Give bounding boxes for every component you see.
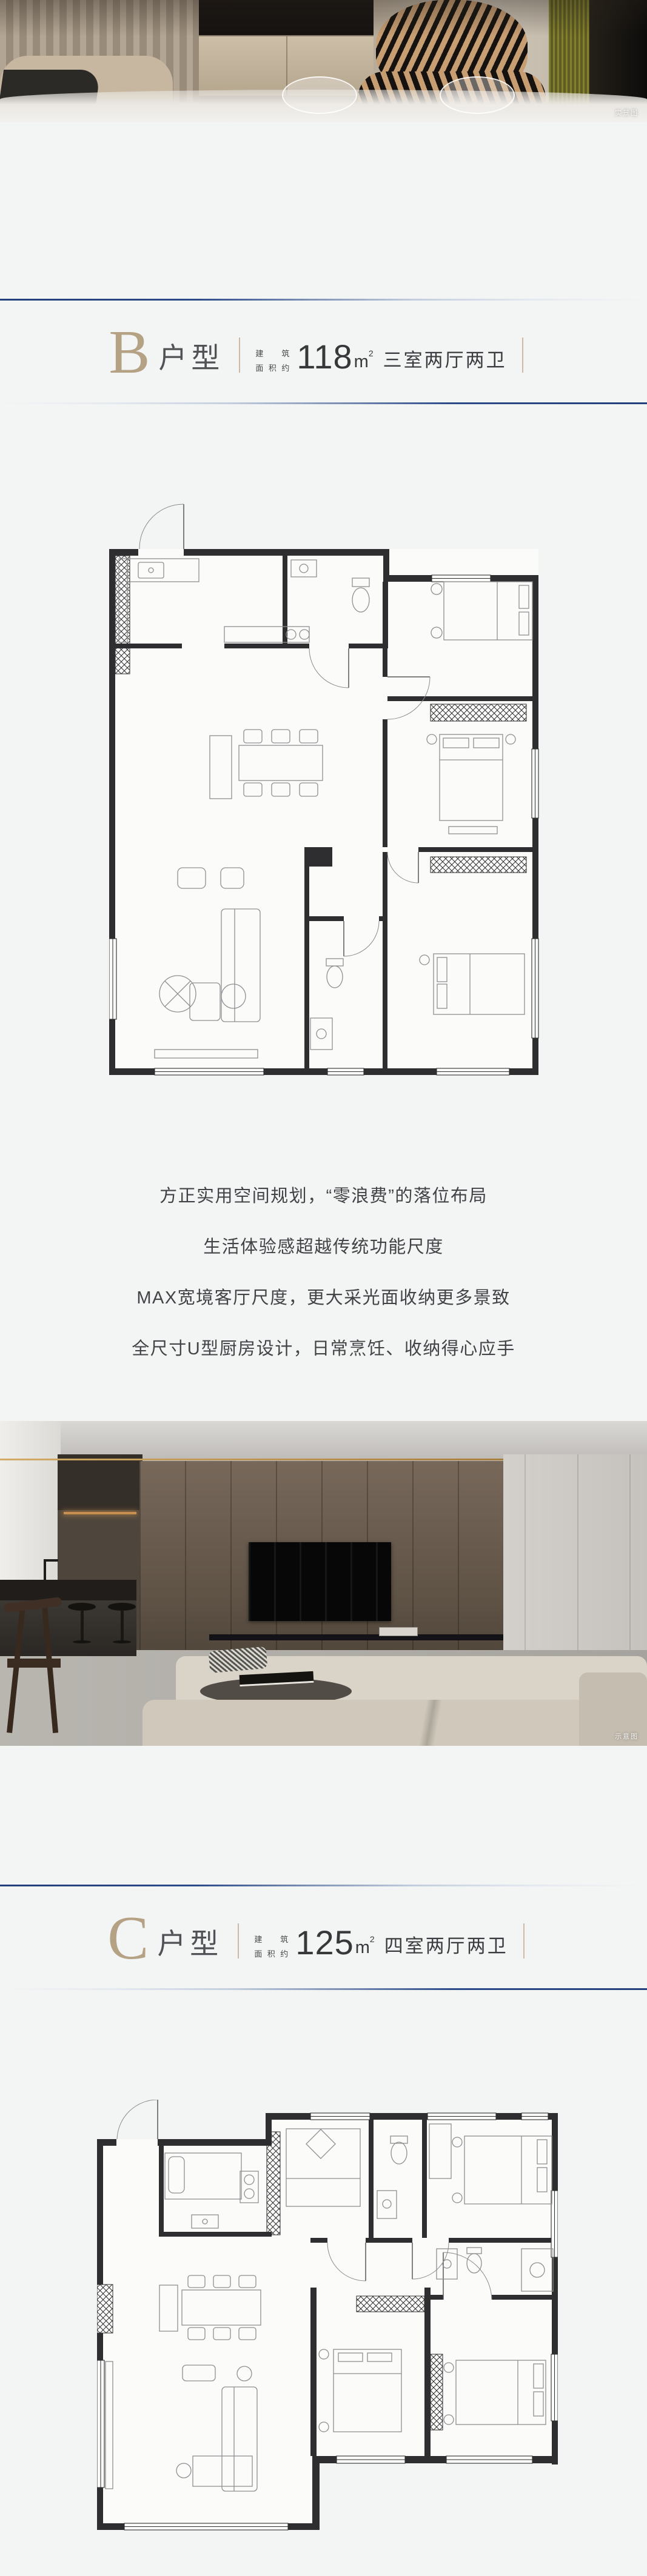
area-label-char: 约: [281, 362, 289, 373]
rule-top-c: [0, 1885, 647, 1886]
promo-page: 实景图 B 户型 建 筑 面 积 约 118 m2 三室两厅两卫: [0, 0, 647, 2576]
separator-line: [522, 338, 523, 373]
unit-c-header: C 户型 建 筑 面 积 约 125 m2 四室两厅两卫: [0, 1902, 647, 1975]
area-label-char: 面: [255, 362, 263, 373]
area-label-char: 筑: [281, 347, 289, 359]
unit-c-area-unit: m2: [355, 1934, 375, 1958]
unit-b-suffix: 户型: [158, 334, 224, 376]
render-photo-living-room: 示意图: [0, 1421, 647, 1746]
unit-b-layout: 三室两厅两卫: [383, 345, 507, 372]
unit-b-area-value: 118: [297, 337, 352, 376]
area-label-char: 面: [254, 1948, 262, 1959]
feature-line-3: MAX宽境客厅尺度，更大采光面收纳更多景致: [0, 1283, 647, 1309]
photo-caption: 示意图: [615, 1731, 639, 1741]
unit-c-area-value: 125: [295, 1923, 354, 1962]
area-label-char: 积: [269, 362, 277, 373]
feature-line-2: 生活体验感超越传统功能尺度: [0, 1233, 647, 1258]
tv-screen: [249, 1542, 391, 1621]
rule-top-b: [0, 299, 647, 301]
unit-b-letter: B: [109, 328, 150, 377]
area-label-char: 约: [280, 1948, 288, 1959]
unit-b-area-unit: m2: [354, 348, 374, 372]
unit-b-area-label: 建 筑 面 积 约: [255, 347, 289, 373]
bar-stool: [68, 1603, 96, 1645]
kitchen-upper-cabinet: [58, 1454, 142, 1510]
photo-caption: 实景图: [615, 108, 639, 118]
floor-plan-c-svg: [97, 2100, 558, 2533]
gold-ceiling-trim: [0, 1459, 503, 1460]
unit-c-area-label: 建 筑 面 积 约: [254, 1933, 288, 1959]
unit-c-letter: C: [107, 1914, 149, 1963]
unit-c-layout: 四室两厅两卫: [384, 1931, 508, 1958]
feature-line-1: 方正实用空间规划，“零浪费”的落位布局: [0, 1182, 647, 1207]
glass-bowl: [276, 76, 367, 115]
faucet: [44, 1559, 46, 1582]
media-ledge: [209, 1634, 503, 1640]
area-label-char: 建: [255, 347, 263, 359]
kitchen-island-top: [0, 1580, 136, 1600]
unit-c-suffix: 户型: [157, 1920, 223, 1962]
lit-shelf: [64, 1512, 136, 1514]
separator-line: [238, 1923, 239, 1959]
feature-line-4: 全尺寸U型厨房设计，日常烹饪、收纳得心应手: [0, 1334, 647, 1360]
faucet-arm: [44, 1559, 58, 1562]
area-label-char: 筑: [280, 1933, 288, 1945]
separator-line: [239, 338, 240, 373]
white-cabinet-wall: [503, 1454, 647, 1655]
hero-photo-living-room: 实景图: [0, 0, 647, 122]
area-label-char: 建: [254, 1933, 262, 1945]
glass-bowl: [434, 76, 525, 115]
floor-plan-b: [109, 498, 540, 1077]
sofa-seam: [340, 1700, 521, 1746]
dining-chair-seat: [7, 1659, 61, 1668]
floor-plan-c: [97, 2100, 558, 2533]
rule-bottom-b: [0, 402, 647, 404]
separator-line: [523, 1923, 525, 1959]
floor-plan-b-svg: [109, 498, 540, 1077]
rule-bottom-c: [0, 1988, 647, 1990]
bar-stool: [108, 1603, 136, 1645]
unit-b-header: B 户型 建 筑 面 积 约 118 m2 三室两厅两卫: [0, 316, 647, 389]
books-on-ledge: [379, 1627, 418, 1636]
top-shadow: [0, 0, 647, 36]
area-label-char: 积: [267, 1948, 275, 1959]
